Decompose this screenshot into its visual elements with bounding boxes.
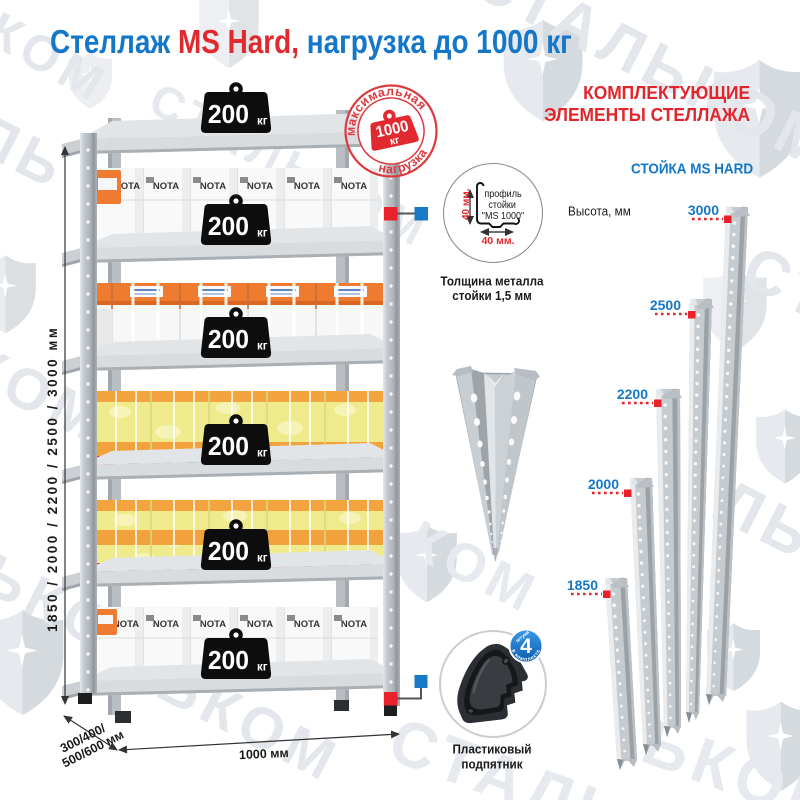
svg-text:NOTA: NOTA xyxy=(247,619,273,630)
svg-text:1000 мм: 1000 мм xyxy=(239,746,289,762)
svg-text:2500: 2500 xyxy=(650,297,681,313)
svg-text:NOTA: NOTA xyxy=(341,181,367,192)
svg-text:профиль: профиль xyxy=(484,188,521,199)
svg-text:Толщина металла: Толщина металла xyxy=(440,274,543,289)
svg-text:NOTA: NOTA xyxy=(200,181,226,192)
svg-text:NOTA: NOTA xyxy=(294,181,320,192)
svg-text:1850 / 2000 / 2200 / 2500 / 30: 1850 / 2000 / 2200 / 2500 / 3000 мм xyxy=(45,326,60,632)
svg-text:NOTA: NOTA xyxy=(153,619,179,630)
svg-text:ЭЛЕМЕНТЫ СТЕЛЛАЖА: ЭЛЕМЕНТЫ СТЕЛЛАЖА xyxy=(544,105,750,126)
svg-text:NOTA: NOTA xyxy=(153,181,179,192)
svg-text:Стеллаж MS Hard, нагрузка до 1: Стеллаж MS Hard, нагрузка до 1000 кг xyxy=(50,23,572,61)
svg-text:2200: 2200 xyxy=(617,386,648,402)
svg-text:NOTA: NOTA xyxy=(341,619,367,630)
svg-text:СТОЙКА MS HARD: СТОЙКА MS HARD xyxy=(631,159,753,178)
svg-text:"MS 1000": "MS 1000" xyxy=(482,210,524,221)
svg-text:NOTA: NOTA xyxy=(247,181,273,192)
svg-text:40 мм.: 40 мм. xyxy=(461,188,472,220)
svg-text:Пластиковый: Пластиковый xyxy=(453,742,532,757)
svg-text:подпятник: подпятник xyxy=(461,757,523,772)
svg-text:3000: 3000 xyxy=(688,202,719,218)
svg-text:стойки 1,5 мм: стойки 1,5 мм xyxy=(452,288,531,303)
svg-text:КОМПЛЕКТУЮЩИЕ: КОМПЛЕКТУЮЩИЕ xyxy=(583,83,750,104)
svg-text:стойки: стойки xyxy=(488,199,516,210)
svg-text:NOTA: NOTA xyxy=(294,619,320,630)
svg-text:1850: 1850 xyxy=(567,577,598,593)
svg-text:Высота, мм: Высота, мм xyxy=(568,204,631,219)
svg-text:NOTA: NOTA xyxy=(200,619,226,630)
svg-text:2000: 2000 xyxy=(588,476,619,492)
svg-text:40 мм.: 40 мм. xyxy=(481,235,514,247)
